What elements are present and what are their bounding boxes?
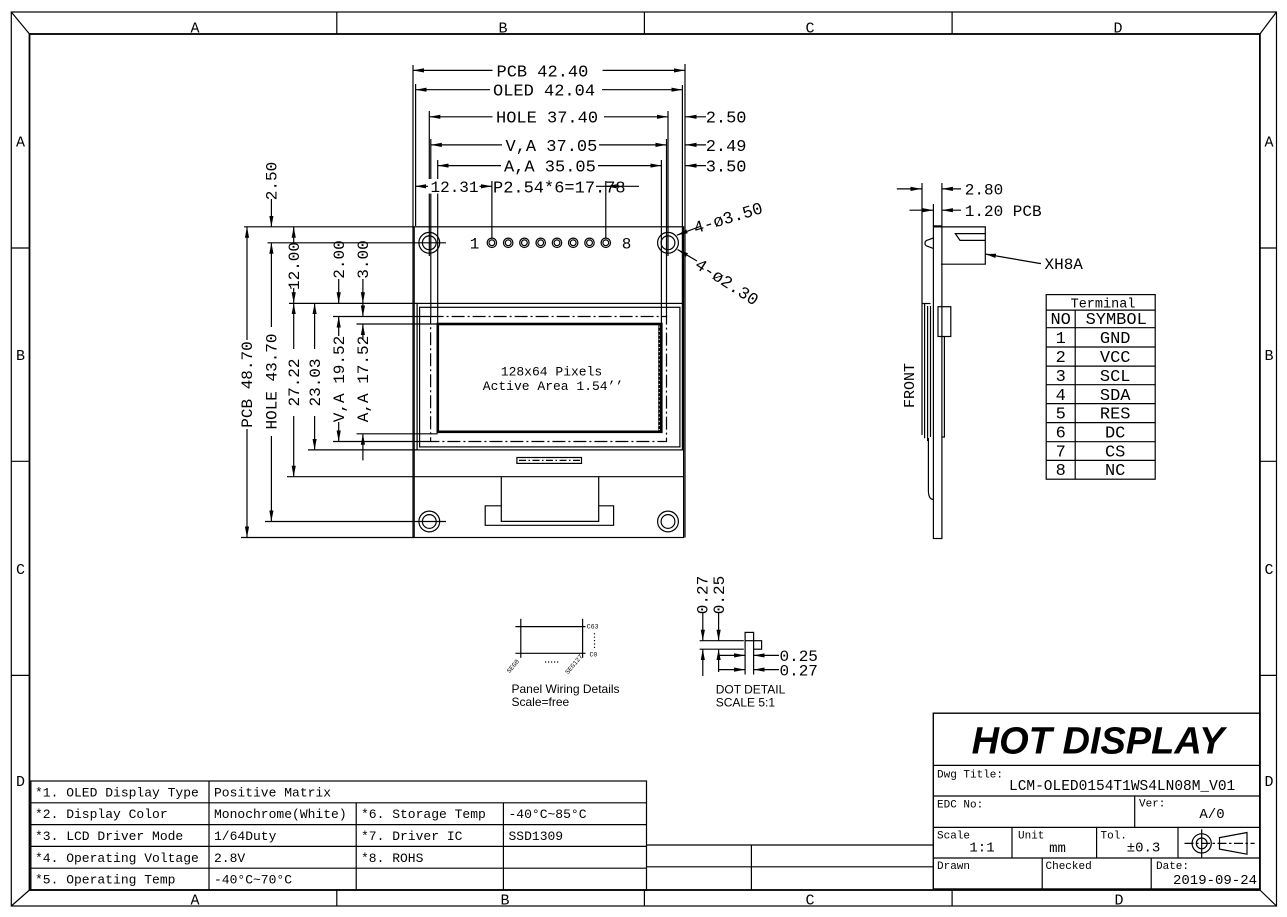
svg-text:Positive Matrix: Positive Matrix [214, 786, 331, 801]
svg-text:D: D [16, 774, 25, 791]
svg-text:3: 3 [1056, 368, 1066, 387]
svg-text:-40°C~70°C: -40°C~70°C [214, 873, 292, 888]
svg-text:Ver:: Ver: [1139, 799, 1165, 811]
svg-text:6: 6 [1056, 425, 1066, 444]
svg-text:2.80: 2.80 [965, 182, 1003, 200]
svg-text:OLED 42.04: OLED 42.04 [493, 83, 595, 102]
svg-text:4: 4 [1056, 387, 1066, 406]
svg-text:C: C [16, 562, 25, 579]
svg-text:2.8V: 2.8V [214, 851, 245, 866]
svg-text:DOT DETAIL: DOT DETAIL [716, 683, 786, 697]
svg-text:B: B [16, 348, 25, 365]
svg-text:A,A 35.05: A,A 35.05 [504, 159, 596, 178]
svg-text:Terminal: Terminal [1071, 297, 1136, 312]
svg-text:Panel Wiring Details: Panel Wiring Details [512, 682, 620, 696]
svg-text:1: 1 [1056, 330, 1066, 349]
svg-text:B: B [498, 21, 507, 38]
svg-text:0.27: 0.27 [780, 662, 818, 680]
svg-text:12.00: 12.00 [286, 242, 304, 290]
svg-text:SYMBOL: SYMBOL [1086, 311, 1147, 330]
svg-text:B: B [500, 893, 509, 910]
svg-text:1:1: 1:1 [969, 841, 994, 857]
svg-text:SEG127: SEG127 [564, 653, 584, 676]
svg-text:*7. Driver IC: *7. Driver IC [361, 829, 463, 844]
svg-text:CS: CS [1105, 444, 1125, 463]
svg-text:2.49: 2.49 [706, 138, 747, 157]
svg-text:*2. Display Color: *2. Display Color [35, 807, 168, 822]
svg-text:Scale: Scale [937, 831, 970, 843]
svg-text:LCM-OLED0154T1WS4LN08M_V01: LCM-OLED0154T1WS4LN08M_V01 [1009, 779, 1235, 795]
svg-text:*6. Storage Temp: *6. Storage Temp [361, 807, 486, 822]
svg-text:4-ø2.30: 4-ø2.30 [691, 256, 761, 311]
svg-text:0.27: 0.27 [695, 576, 713, 614]
svg-text:2.50: 2.50 [264, 162, 282, 200]
svg-text:1.20 PCB: 1.20 PCB [965, 203, 1042, 221]
svg-text:C: C [805, 893, 814, 910]
svg-text:V,A 19.52: V,A 19.52 [331, 336, 349, 422]
svg-text:2: 2 [1056, 349, 1066, 368]
svg-text:SCALE 5:1: SCALE 5:1 [716, 696, 776, 710]
svg-text:GND: GND [1100, 330, 1131, 349]
svg-text:B: B [1264, 348, 1273, 365]
svg-text:27.22: 27.22 [286, 358, 304, 406]
svg-text:RES: RES [1100, 406, 1131, 425]
svg-text:Date:: Date: [1156, 861, 1189, 873]
svg-text:D: D [1114, 893, 1123, 910]
svg-text:23.03: 23.03 [307, 358, 325, 406]
svg-text:SSD1309: SSD1309 [509, 829, 564, 844]
svg-text:3.00: 3.00 [355, 240, 373, 278]
svg-text:1: 1 [470, 235, 480, 253]
svg-text:SEG0: SEG0 [506, 658, 521, 675]
svg-text:PCB 42.40: PCB 42.40 [497, 63, 589, 82]
svg-text:*4. Operating Voltage: *4. Operating Voltage [35, 851, 199, 866]
svg-text:7: 7 [1056, 444, 1066, 463]
svg-text:D: D [1264, 774, 1273, 791]
svg-text:*3. LCD Driver Mode: *3. LCD Driver Mode [35, 829, 183, 844]
svg-text:A: A [1264, 135, 1273, 152]
svg-text:EDC No:: EDC No: [937, 800, 983, 812]
svg-text:8: 8 [1056, 462, 1066, 481]
svg-text:SDA: SDA [1100, 387, 1131, 406]
svg-text:128x64 Pixels: 128x64 Pixels [501, 364, 602, 379]
svg-text:mm: mm [1049, 841, 1066, 857]
svg-text:DC: DC [1105, 425, 1125, 444]
svg-text:XH8A: XH8A [1045, 256, 1084, 274]
svg-text:HOLE 43.70: HOLE 43.70 [264, 333, 282, 429]
svg-text:HOLE 37.40: HOLE 37.40 [496, 110, 598, 129]
svg-text:2019-09-24: 2019-09-24 [1173, 873, 1257, 889]
svg-text:*5. Operating Temp: *5. Operating Temp [35, 873, 175, 888]
svg-text:Dwg Title:: Dwg Title: [937, 770, 1003, 782]
svg-text:*1. OLED Display Type: *1. OLED Display Type [35, 786, 199, 801]
svg-text:-40°C~85°C: -40°C~85°C [509, 807, 587, 822]
svg-text:SCL: SCL [1100, 368, 1131, 387]
svg-text:VCC: VCC [1100, 349, 1131, 368]
svg-text:±0.3: ±0.3 [1127, 841, 1161, 857]
svg-text:Scale=free: Scale=free [512, 695, 570, 709]
svg-text:1/64Duty: 1/64Duty [214, 829, 277, 844]
svg-text:A: A [190, 893, 199, 910]
svg-text:C: C [1264, 562, 1273, 579]
svg-text:C63: C63 [587, 624, 599, 631]
svg-text:2.50: 2.50 [706, 110, 747, 129]
svg-text:A/0: A/0 [1199, 807, 1224, 823]
svg-text:2.00: 2.00 [331, 240, 349, 278]
svg-text:HOT DISPLAY: HOT DISPLAY [972, 721, 1228, 763]
svg-text:A: A [190, 21, 199, 38]
svg-text:12.31: 12.31 [431, 179, 479, 197]
svg-text:5: 5 [1056, 406, 1066, 425]
svg-text:C0: C0 [590, 652, 598, 659]
svg-text:NO: NO [1050, 311, 1070, 330]
svg-text:8: 8 [622, 235, 632, 253]
svg-text:A: A [16, 135, 25, 152]
svg-text:V,A 37.05: V,A 37.05 [506, 138, 598, 157]
svg-text:FRONT: FRONT [902, 363, 919, 408]
svg-text:D: D [1113, 21, 1122, 38]
svg-text:Tol.: Tol. [1101, 831, 1127, 843]
svg-text:Active Area 1.54’’: Active Area 1.54’’ [483, 379, 623, 394]
svg-text:P2.54*6=17.78: P2.54*6=17.78 [493, 179, 626, 198]
svg-text:NC: NC [1105, 462, 1125, 481]
svg-text:Monochrome(White): Monochrome(White) [214, 807, 347, 822]
svg-text:PCB 48.70: PCB 48.70 [239, 341, 257, 427]
svg-text:C: C [805, 21, 814, 38]
svg-text:0.25: 0.25 [711, 576, 729, 614]
svg-text:4-ø3.50: 4-ø3.50 [692, 200, 766, 239]
svg-text:Unit: Unit [1018, 831, 1044, 843]
svg-text:3.50: 3.50 [706, 159, 747, 178]
svg-text:Checked: Checked [1046, 861, 1092, 873]
svg-text:Drawn: Drawn [937, 861, 970, 873]
svg-text:A,A 17.52: A,A 17.52 [355, 336, 373, 422]
svg-text:*8. ROHS: *8. ROHS [361, 851, 424, 866]
